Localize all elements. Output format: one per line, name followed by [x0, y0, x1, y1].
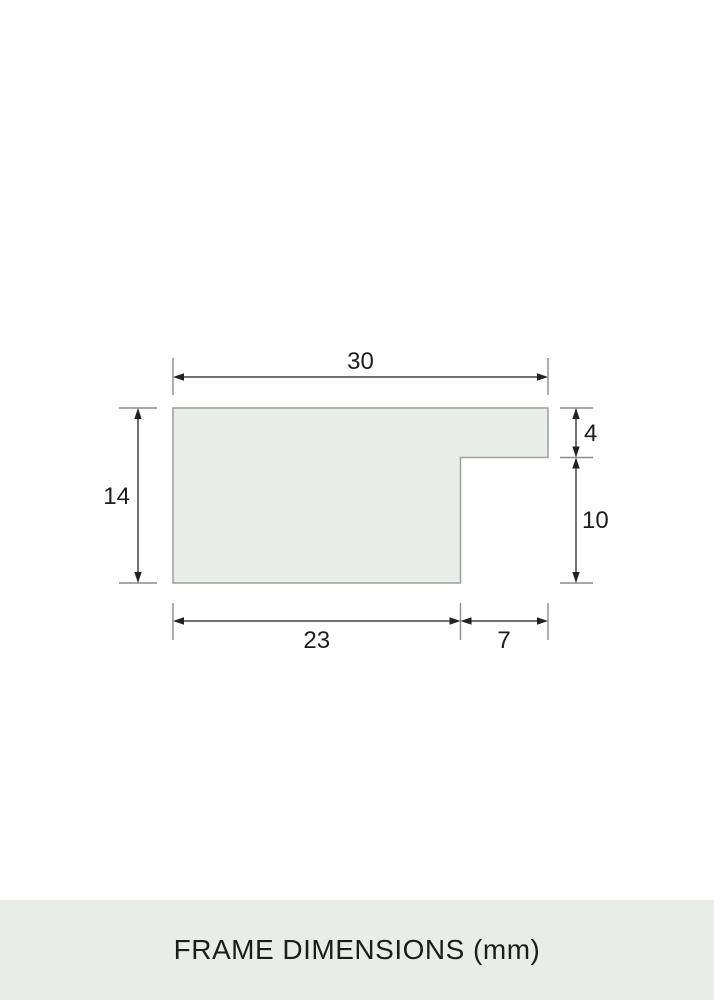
arrowhead-left-icon	[461, 617, 472, 624]
arrowhead-right-icon	[450, 617, 461, 624]
dimension-label-left-height: 14	[103, 483, 130, 510]
dimension-bottom-left: 23	[173, 603, 461, 654]
arrowhead-down-icon	[572, 572, 579, 583]
dimension-left-height: 14	[103, 408, 157, 583]
arrowhead-left-icon	[173, 373, 184, 380]
arrowhead-down-icon	[572, 447, 579, 458]
arrowhead-up-icon	[572, 408, 579, 419]
dimension-top-width: 30	[173, 348, 548, 395]
drawing-title: FRAME DIMENSIONS (mm)	[174, 934, 541, 966]
frame-profile-drawing: 30 14 4 10	[0, 0, 714, 900]
arrowhead-left-icon	[173, 617, 184, 624]
dimension-label-right-upper: 4	[584, 420, 597, 447]
arrowhead-right-icon	[537, 373, 548, 380]
dimension-label-bottom-right: 7	[497, 627, 510, 654]
dimension-right-lower: 10	[560, 458, 609, 584]
dimension-right-upper: 4	[560, 408, 597, 458]
dimension-label-bottom-left: 23	[303, 627, 330, 654]
frame-dimensions-page: 30 14 4 10	[0, 0, 714, 1000]
dimension-label-right-lower: 10	[582, 507, 609, 534]
dimension-label-top-width: 30	[347, 348, 374, 375]
arrowhead-down-icon	[134, 572, 141, 583]
dimension-bottom-right: 7	[461, 603, 549, 654]
frame-profile-shape	[173, 408, 548, 583]
arrowhead-up-icon	[134, 408, 141, 419]
arrowhead-right-icon	[537, 617, 548, 624]
footer-band: FRAME DIMENSIONS (mm)	[0, 900, 714, 1000]
arrowhead-up-icon	[572, 458, 579, 469]
